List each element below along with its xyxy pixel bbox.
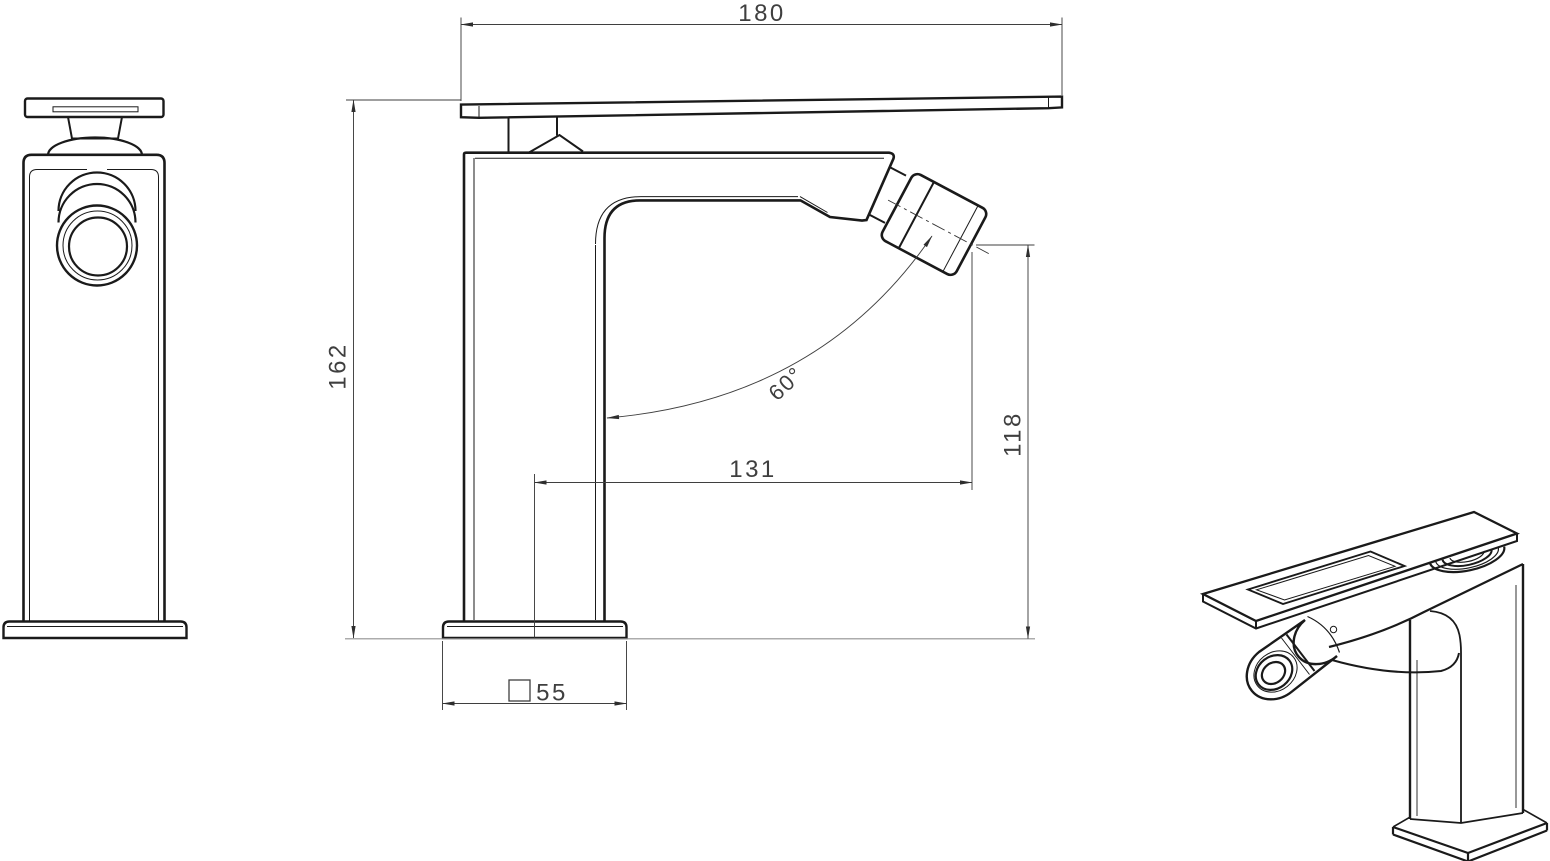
handle-length-label: 180 xyxy=(738,0,786,27)
technical-drawing-page: 180 162 131 118 60° xyxy=(0,0,1550,861)
base-plate xyxy=(4,622,187,639)
aerator-chamfer-circle xyxy=(63,211,132,280)
flow-centerline xyxy=(888,200,990,254)
neck-screw-detail xyxy=(1330,626,1336,632)
square-section-symbol xyxy=(509,680,530,701)
handle-lever-outline xyxy=(461,97,1062,118)
cartridge-dome xyxy=(48,138,142,155)
side-view xyxy=(345,97,1062,639)
dimension-base-width: 55 xyxy=(443,641,627,710)
aerator-neck-top xyxy=(890,167,907,176)
aerator-spout xyxy=(1246,620,1337,701)
arm-underside-slope-line xyxy=(800,197,828,213)
handle-paddle-edge xyxy=(25,99,164,118)
spout-reach-label: 131 xyxy=(729,456,777,483)
body-inner-panel-right xyxy=(107,170,159,621)
aerator-neck-bottom xyxy=(869,215,885,223)
dimension-overall-height: 162 xyxy=(325,100,462,638)
base-width-label: 55 xyxy=(536,680,568,707)
outlet-height-label: 118 xyxy=(1000,411,1027,457)
aerator-head xyxy=(870,167,1008,288)
arm-underside-inner-line xyxy=(596,197,799,244)
dimension-annotations: 180 162 131 118 60° xyxy=(325,0,1063,710)
dimension-outlet-height: 118 xyxy=(976,245,1035,639)
spout-angle-label: 60° xyxy=(764,361,809,405)
dimension-handle-length: 180 xyxy=(461,0,1062,101)
column-silhouette xyxy=(1329,564,1523,823)
overall-height-label: 162 xyxy=(325,342,352,390)
dimension-spout-angle: 60° xyxy=(607,236,932,418)
faucet-technical-drawing: 180 162 131 118 60° xyxy=(0,0,1550,861)
dimension-spout-reach: 131 xyxy=(535,252,973,638)
body-outline xyxy=(464,153,894,622)
perspective-view xyxy=(1203,512,1547,861)
handle-pivot-wedge xyxy=(529,135,583,153)
front-view xyxy=(4,99,187,639)
handle-slot xyxy=(53,107,138,112)
base-top-edges xyxy=(1393,823,1547,853)
body-outline xyxy=(24,155,165,622)
handle-stem xyxy=(68,117,122,139)
aerator-inner-circle xyxy=(69,218,127,276)
